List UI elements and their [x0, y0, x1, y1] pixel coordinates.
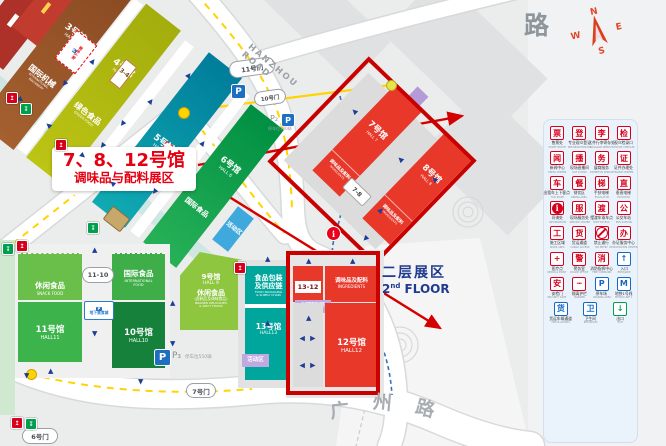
info-point-marker: i: [326, 226, 341, 241]
snack-food-area: 休闲食品 SNACK FOOD: [18, 253, 82, 300]
legend-label-en: LIVE STUDIO: [572, 171, 587, 173]
entrance-door-icon: ↥: [55, 139, 67, 151]
annotation-title: 7、8、12号馆: [63, 152, 185, 170]
legend-row: i问询处INFORMATION服现场服务处SERVICE CENTER渡摆渡车乘…: [546, 201, 635, 224]
compass-s: S: [598, 46, 606, 57]
service-center-icon: 服: [572, 201, 586, 215]
security-gate-icon: 安: [550, 277, 564, 291]
legend-item: ↑入口ENTRANCE: [613, 252, 635, 275]
legend-item: 直垂直电梯ELEVATOR: [613, 176, 635, 199]
venue-map-screen: 国际机械 INTERNATIONAL MACHINERY 3号馆 HALL 3 …: [0, 0, 666, 446]
exit-door-icon: ↧: [2, 243, 14, 255]
legend-label-en: ELEVATOR: [618, 196, 630, 198]
parking-p3-note: 停车位550辆: [185, 354, 212, 360]
legend-label-en: SECURITY GATE: [548, 297, 567, 299]
escalator-icon: 梯: [595, 176, 609, 190]
legend-item: 车出租车上下客点TAXI POINT: [546, 176, 568, 199]
legend-item: 安安检门SECURITY GATE: [546, 277, 568, 300]
road-label-partial: 路: [524, 6, 549, 42]
gate-6: 6号门: [22, 428, 58, 444]
legend-row: 闻新闻中心PRESS CENTER播现场直播间LIVE STUDIO务展商服务E…: [546, 151, 635, 174]
legend-row: +医疗点MEDICAL POINT警警务室POLICE OFFICE消消防指挥中…: [546, 252, 635, 275]
legend-row: 货货运车辆通道TRUCK ACCESS卫卫生间RESTROOM↓出口EXIT: [546, 302, 635, 325]
pre-registration-icon: 登: [572, 126, 586, 140]
legend-label-en: BADGE CENTER: [614, 171, 633, 173]
legend-item: P停车场PARKING AREA: [591, 277, 613, 300]
legend-label-en: ESCALATOR: [594, 196, 608, 198]
legend-item: 渡摆渡车乘车点SHUTTLE BUS: [591, 201, 613, 224]
no-entry-icon: [595, 226, 609, 240]
parking-icon-p2: P: [281, 113, 295, 127]
legend-item: 工施工区域WORK AREA: [546, 226, 568, 249]
legend-label-en: REGISTRATION CENTER: [610, 246, 638, 248]
legend-item: 票售票处TICKET BOOTH: [546, 126, 568, 149]
parking-area-icon: P: [595, 277, 609, 291]
legend-item: 服现场服务处SERVICE CENTER: [568, 201, 590, 224]
entrance-door-icon: ↥: [6, 92, 18, 104]
truck-access-icon: 货: [554, 302, 568, 316]
dining-area-icon: 餐: [572, 176, 586, 190]
parking-p3-label: P₃: [172, 351, 181, 361]
legend-label-en: BARRIER: [574, 297, 585, 299]
ticket-booth-icon: 票: [550, 126, 564, 140]
police-office-icon: 警: [572, 252, 586, 266]
parking-icon: P: [231, 84, 246, 99]
legend-row: 票售票处TICKET BOOTH登专业观众登记PRE-REGISTRATION李…: [546, 126, 635, 149]
west-strip: [0, 240, 15, 415]
entrance-door-icon: ↥: [16, 240, 28, 252]
annotation-box: 7、8、12号馆 调味品与配料展区: [52, 147, 196, 191]
legend-item: 消消防指挥中心FIRE COMMAND: [591, 252, 613, 275]
legend-label-en: DINING AREA: [571, 196, 587, 198]
legend-item: 证证件办理处BADGE CENTER: [613, 151, 635, 174]
legend-label-en: MEDICAL POINT: [548, 271, 567, 273]
underground-food-tag: P 地下美食城: [84, 301, 114, 320]
legend-item: 货货运通道CARGO ACCESS: [568, 226, 590, 249]
information-icon: i: [550, 201, 564, 215]
legend-row: 工施工区域WORK AREA货货运通道CARGO ACCESS禁止通行NO EN…: [546, 226, 635, 249]
visitor-check-in-icon: 检: [617, 126, 631, 140]
hall12-highlight-frame: [286, 251, 380, 395]
press-center-icon: 闻: [550, 151, 564, 165]
metro-line-1-icon: M: [617, 277, 631, 291]
gate-11-10: 11-10: [82, 267, 114, 283]
legend-label-en: ENTRANCE: [617, 271, 630, 273]
hall-6-category: 国际食品: [183, 196, 210, 220]
international-food-area: 国际食品 INTERNATIONAL FOOD: [112, 253, 165, 300]
legend-label-en: INFORMATION: [549, 221, 566, 223]
legend-item: 检观众检录口VISITOR CHECK-IN: [613, 126, 635, 149]
road-label-guangzhou-1: 广: [329, 395, 351, 424]
legend-item: 餐餐饮区DINING AREA: [568, 176, 590, 199]
legend-label-en: EXIT: [617, 322, 622, 324]
barrier-icon: ┅: [572, 277, 586, 291]
exhibitor-service-icon: 务: [595, 151, 609, 165]
exit-door-icon: ↧: [25, 418, 37, 430]
road-label-guangzhou-2: 州: [372, 387, 393, 416]
legend-label-en: TAXI POINT: [550, 196, 563, 198]
legend-label-en: FIRE COMMAND: [592, 271, 611, 273]
legend-label-en: VISITOR CHECK-IN: [613, 146, 635, 148]
legend-label-en: METRO LINE 1: [615, 297, 632, 299]
entrance-door-icon: ↥: [234, 262, 246, 274]
legend-label-en: SHUTTLE BUS: [593, 221, 610, 223]
parking-p2-note: 停车位180辆: [268, 126, 292, 132]
legend-label-en: EXHIBITOR SERVICE: [590, 171, 614, 173]
legend-item: 播现场直播间LIVE STUDIO: [568, 151, 590, 174]
activity-area-label: 活动区: [242, 354, 269, 367]
legend-item: M地铁1号线METRO LINE 1: [613, 277, 635, 300]
legend-item: 闻新闻中心PRESS CENTER: [546, 151, 568, 174]
junction-dot: [26, 369, 37, 380]
registration-center-icon: 办: [617, 226, 631, 240]
legend-label-en: TRUCK ACCESS: [552, 322, 570, 324]
legend-label-en: BAGGAGE DEPOSIT: [590, 146, 613, 148]
exit-door-icon: ↧: [87, 222, 99, 234]
junction-dot: [386, 80, 397, 91]
legend-item: 梯手扶电梯ESCALATOR: [591, 176, 613, 199]
bus-station-icon: 公: [617, 201, 631, 215]
cargo-access-icon: 货: [572, 226, 586, 240]
legend-item: 卫卫生间RESTROOM: [579, 302, 601, 325]
taxi-point-icon: 车: [550, 176, 564, 190]
exit-icon: ↓: [613, 302, 627, 316]
live-studio-icon: 播: [572, 151, 586, 165]
compass-e: E: [615, 22, 623, 33]
legend-item: ↓出口EXIT: [609, 302, 631, 325]
medical-point-icon: +: [550, 252, 564, 266]
legend-label-en: NO ENTRY: [596, 246, 608, 248]
legend-item: 货货运车辆通道TRUCK ACCESS: [550, 302, 572, 325]
legend-label-en: BUS STATION: [616, 221, 632, 223]
baggage-deposit-icon: 李: [595, 126, 609, 140]
legend-label-en: TICKET BOOTH: [548, 146, 566, 148]
legend-row: 安安检门SECURITY GATE┅隔离护栏BARRIERP停车场PARKING…: [546, 277, 635, 300]
legend-label-en: SERVICE CENTER: [569, 221, 590, 223]
legend-item: ┅隔离护栏BARRIER: [568, 277, 590, 300]
legend-item: 务展商服务EXHIBITOR SERVICE: [591, 151, 613, 174]
legend-item: 登专业观众登记PRE-REGISTRATION: [568, 126, 590, 149]
entrance-door-icon: ↥: [11, 417, 23, 429]
legend-item: 李大件行李寄存处BAGGAGE DEPOSIT: [591, 126, 613, 149]
compass-w: W: [570, 31, 582, 43]
entrance-icon: ↑: [617, 252, 631, 266]
legend-label-en: RESTROOM: [584, 322, 598, 324]
junction-dot: [178, 107, 190, 119]
legend-row: 车出租车上下客点TAXI POINT餐餐饮区DINING AREA梯手扶电梯ES…: [546, 176, 635, 199]
legend-item: i问询处INFORMATION: [546, 201, 568, 224]
work-area-icon: 工: [550, 226, 564, 240]
legend-label-en: PRE-REGISTRATION: [568, 146, 591, 148]
legend-label-en: PRESS CENTER: [548, 171, 566, 173]
legend-item: +医疗点MEDICAL POINT: [546, 252, 568, 275]
legend-item: 公公交车站BUS STATION: [613, 201, 635, 224]
fire-command-icon: 消: [595, 252, 609, 266]
legend-label-en: POLICE OFFICE: [570, 271, 588, 273]
annotation-subtitle: 调味品与配料展区: [74, 170, 174, 186]
badge-center-icon: 证: [617, 151, 631, 165]
legend-item: 办办证服务中心REGISTRATION CENTER: [613, 226, 635, 249]
shuttle-bus-icon: 渡: [595, 201, 609, 215]
second-floor-label: 二层展区 2nd FLOOR: [382, 262, 478, 296]
legend-label-en: PARKING AREA: [593, 297, 611, 299]
legend-panel: 票售票处TICKET BOOTH登专业观众登记PRE-REGISTRATION李…: [543, 119, 638, 443]
restroom-icon: 卫: [583, 302, 597, 316]
legend-label-en: WORK AREA: [550, 246, 565, 248]
legend-label-en: CARGO ACCESS: [570, 246, 589, 248]
parking-icon-p3: P: [154, 349, 171, 366]
parking-p2-label: P₂: [270, 114, 278, 123]
elevator-icon: 直: [617, 176, 631, 190]
legend-item: 警警务室POLICE OFFICE: [568, 252, 590, 275]
hall-11: 11号馆 HALL11: [18, 302, 82, 362]
exit-door-icon: ↧: [20, 103, 32, 115]
gate-7: 7号门: [186, 383, 216, 398]
compass-rose: N E S W: [566, 2, 628, 58]
